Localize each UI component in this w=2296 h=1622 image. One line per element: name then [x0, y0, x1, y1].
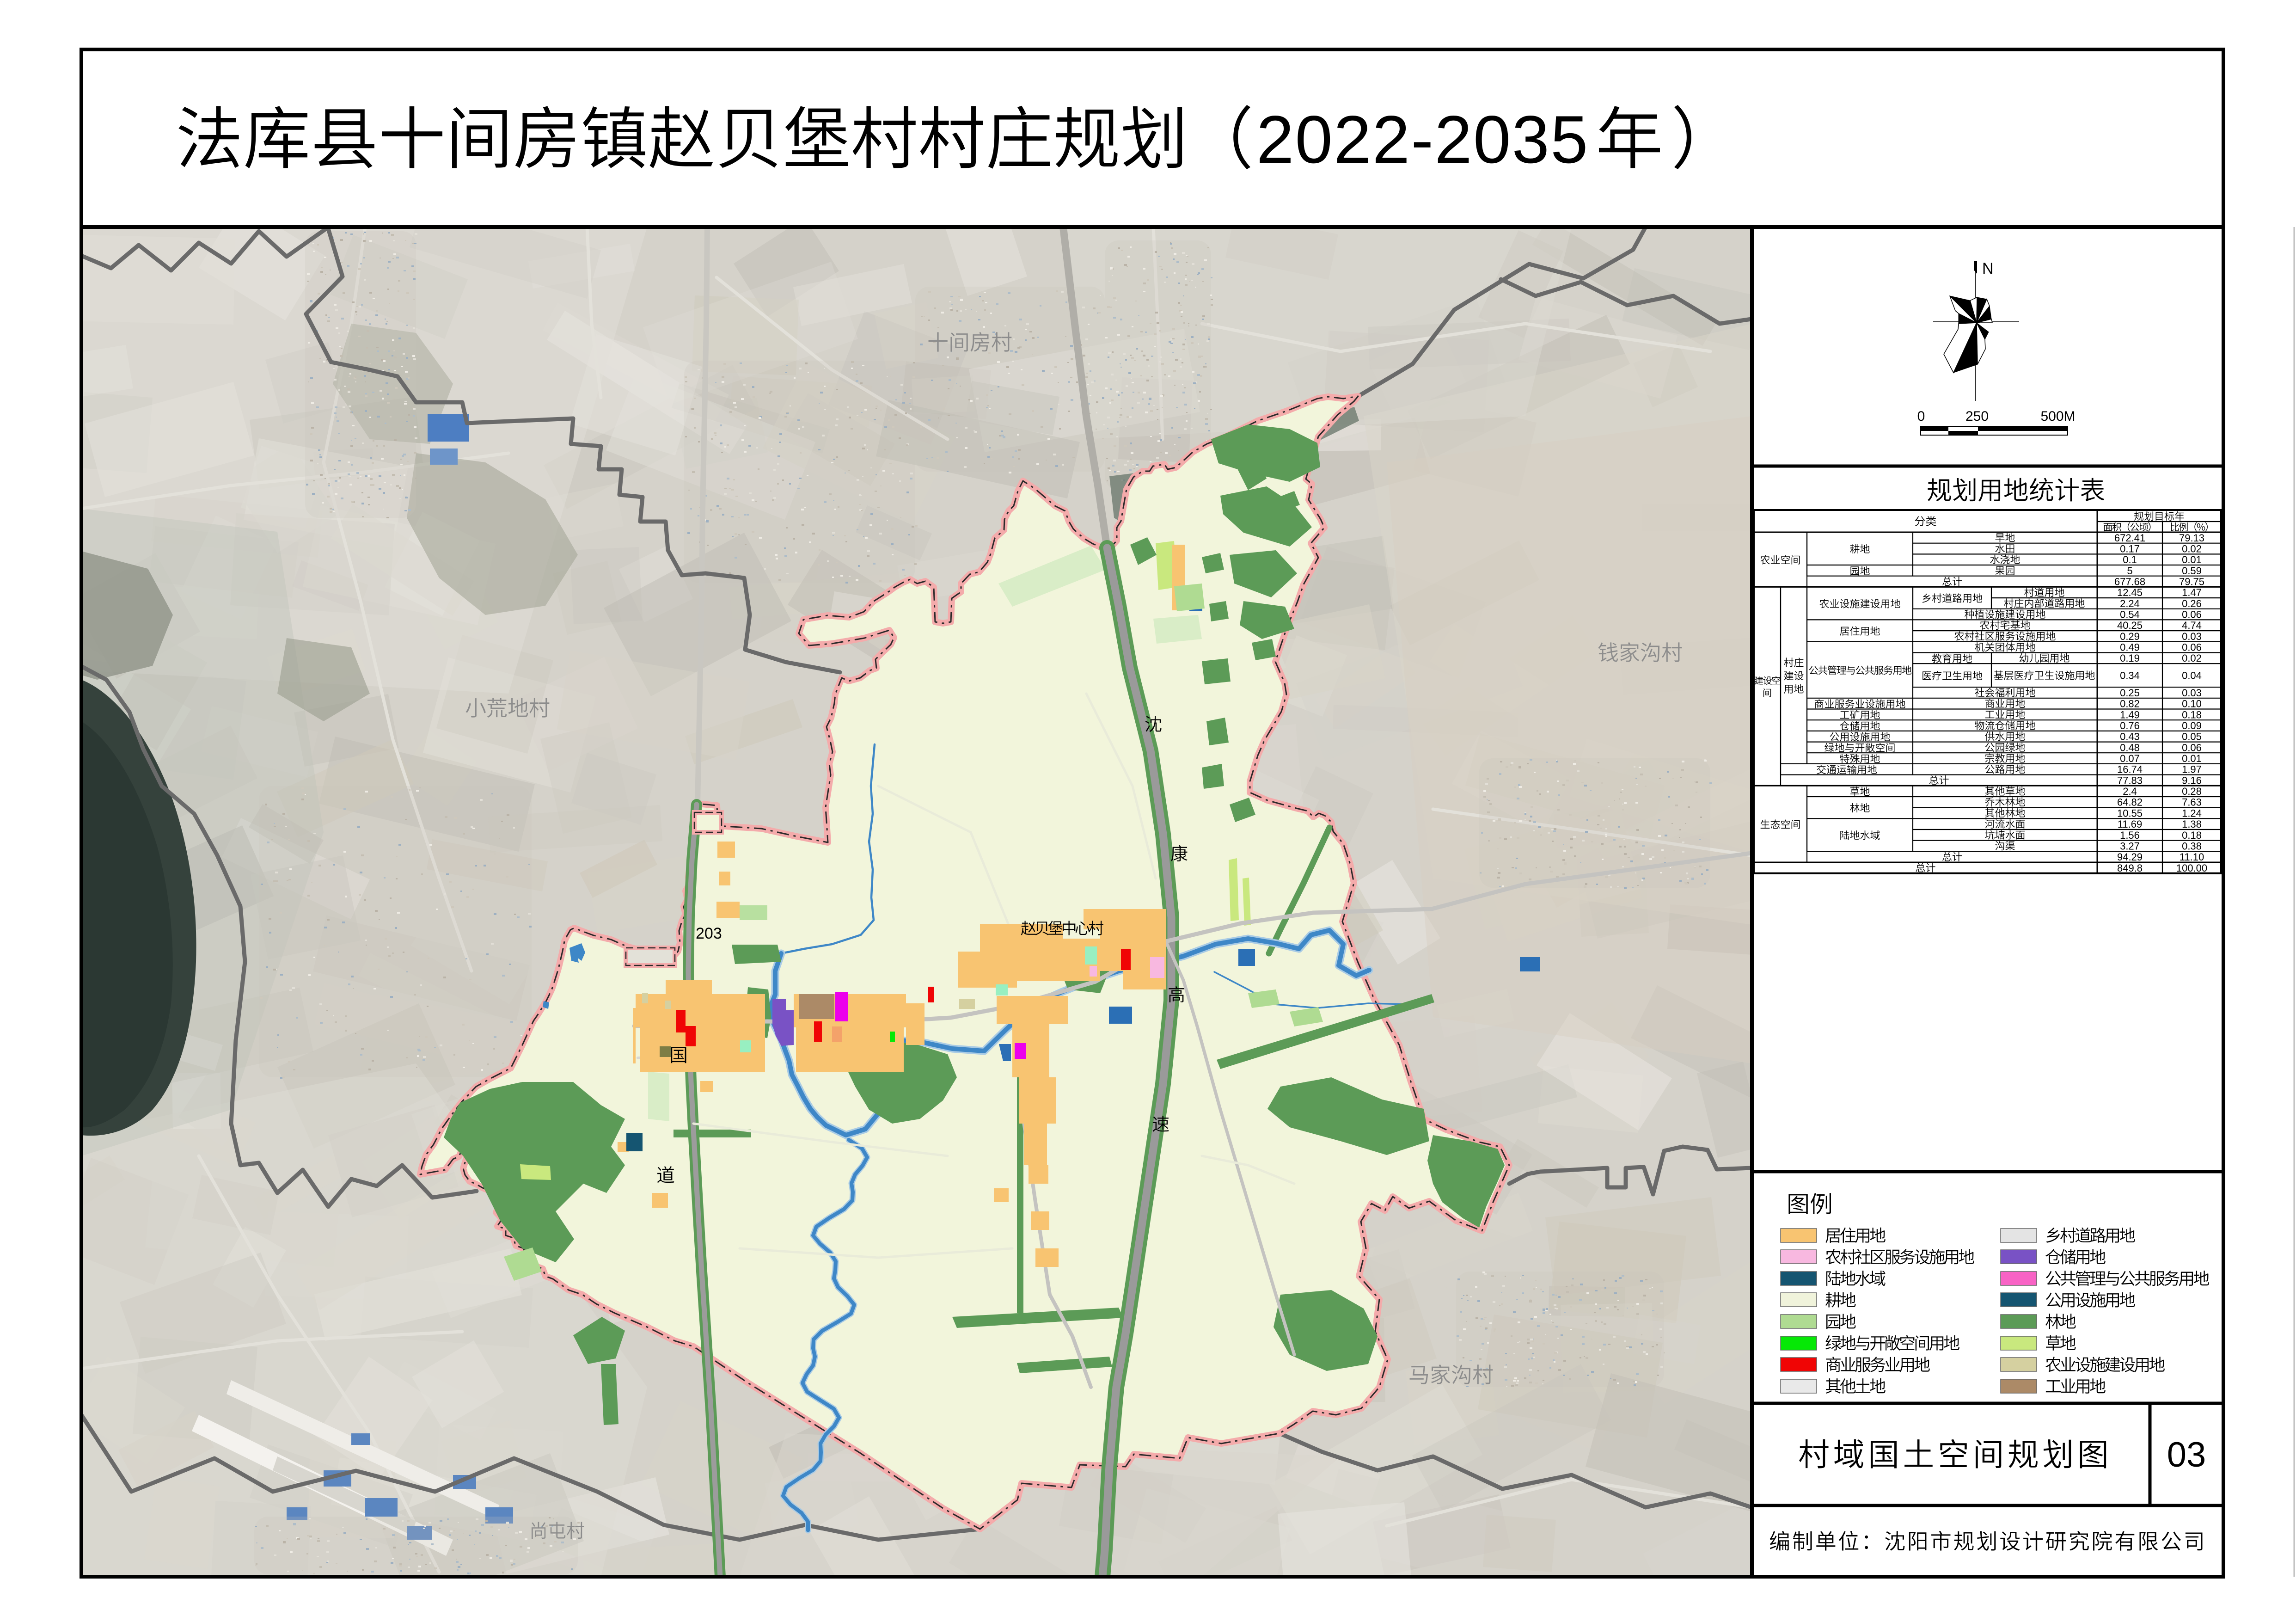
svg-text:0.28: 0.28 [2182, 786, 2202, 797]
svg-text:0.19: 0.19 [2120, 652, 2140, 664]
svg-text:2.24: 2.24 [2120, 598, 2140, 609]
svg-text:0.07: 0.07 [2120, 753, 2140, 764]
svg-text:677.68: 677.68 [2114, 576, 2145, 588]
svg-text:1.24: 1.24 [2182, 807, 2202, 819]
svg-text:0.02: 0.02 [2182, 652, 2202, 664]
svg-text:0.82: 0.82 [2120, 698, 2140, 710]
svg-text:203: 203 [696, 925, 722, 942]
svg-text:1.97: 1.97 [2182, 764, 2202, 775]
svg-text:0.01: 0.01 [2182, 554, 2202, 565]
svg-text:0.59: 0.59 [2182, 565, 2202, 577]
svg-text:0.54: 0.54 [2120, 609, 2140, 621]
svg-text:0.18: 0.18 [2182, 829, 2202, 841]
svg-text:11.69: 11.69 [2118, 818, 2142, 830]
svg-text:0.18: 0.18 [2182, 709, 2202, 720]
svg-text:500M: 500M [2040, 409, 2075, 424]
svg-text:0.48: 0.48 [2120, 742, 2140, 753]
svg-text:0.26: 0.26 [2182, 598, 2202, 609]
svg-text:12.45: 12.45 [2117, 587, 2143, 598]
svg-text:0.34: 0.34 [2120, 670, 2140, 682]
svg-text:1.38: 1.38 [2182, 818, 2202, 830]
svg-text:0.17: 0.17 [2120, 543, 2140, 554]
svg-text:0.76: 0.76 [2120, 720, 2140, 731]
svg-text:250: 250 [1965, 409, 1989, 424]
svg-text:0.03: 0.03 [2182, 687, 2202, 699]
svg-text:5: 5 [2127, 565, 2132, 577]
svg-text:0.49: 0.49 [2120, 642, 2140, 653]
svg-text:79.13: 79.13 [2179, 532, 2204, 544]
svg-text:100.00: 100.00 [2176, 862, 2207, 874]
svg-text:16.74: 16.74 [2117, 764, 2143, 775]
svg-text:0.1: 0.1 [2123, 554, 2137, 565]
svg-text:1.47: 1.47 [2182, 587, 2202, 598]
svg-text:7.63: 7.63 [2182, 797, 2202, 808]
svg-text:0: 0 [1917, 409, 1925, 424]
svg-text:N: N [1982, 260, 1994, 277]
svg-text:79.75: 79.75 [2179, 576, 2204, 588]
svg-text:0.25: 0.25 [2120, 687, 2140, 699]
svg-text:9.16: 9.16 [2182, 774, 2202, 786]
svg-text:77.83: 77.83 [2117, 774, 2143, 786]
svg-text:0.29: 0.29 [2120, 631, 2140, 642]
svg-text:2.4: 2.4 [2123, 786, 2137, 797]
svg-text:0.38: 0.38 [2182, 840, 2202, 852]
svg-text:10.55: 10.55 [2117, 807, 2143, 819]
svg-text:40.25: 40.25 [2117, 620, 2143, 631]
svg-text:0.03: 0.03 [2182, 631, 2202, 642]
svg-text:0.06: 0.06 [2182, 642, 2202, 653]
svg-text:0.05: 0.05 [2182, 731, 2202, 743]
svg-text:849.8: 849.8 [2117, 862, 2143, 874]
svg-text:11.10: 11.10 [2180, 851, 2204, 863]
svg-text:0.43: 0.43 [2120, 731, 2140, 743]
svg-text:2022-2035: 2022-2035 [1256, 102, 1589, 177]
svg-text:0.09: 0.09 [2182, 720, 2202, 731]
svg-text:0.06: 0.06 [2182, 609, 2202, 621]
svg-text:0.04: 0.04 [2182, 670, 2202, 682]
svg-text:0.10: 0.10 [2182, 698, 2202, 710]
svg-text:4.74: 4.74 [2182, 620, 2202, 631]
svg-text:3.27: 3.27 [2120, 840, 2140, 852]
svg-text:672.41: 672.41 [2114, 532, 2145, 544]
svg-text:1.49: 1.49 [2120, 709, 2140, 720]
svg-text:1.56: 1.56 [2120, 829, 2140, 841]
svg-text:0.01: 0.01 [2182, 753, 2202, 764]
svg-text:03: 03 [2167, 1435, 2206, 1475]
svg-text:94.29: 94.29 [2117, 851, 2143, 863]
svg-text:0.02: 0.02 [2182, 543, 2202, 554]
svg-text:64.82: 64.82 [2117, 797, 2143, 808]
svg-text:0.06: 0.06 [2182, 742, 2202, 753]
